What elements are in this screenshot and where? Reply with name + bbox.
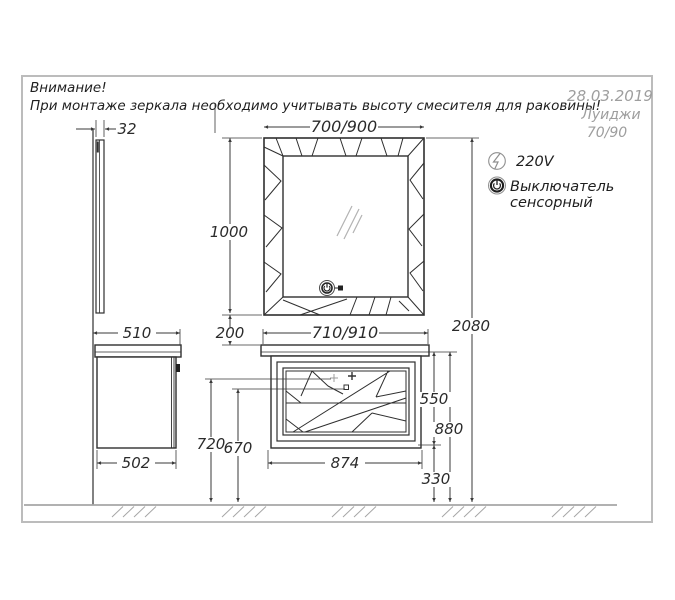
stamp-date: 28.03.2019 xyxy=(567,87,653,105)
power-supply-icon xyxy=(489,153,506,170)
dim-floor-clearance: 330 xyxy=(422,470,451,488)
dim-handle-height-right: 670 xyxy=(224,439,253,457)
dim-cabinet-body-width: 874 xyxy=(331,454,360,472)
switch-label-1: Выключатель xyxy=(510,179,614,195)
title-stamp: 28.03.2019 Луиджи 70/90 xyxy=(567,87,653,141)
lightning-icon xyxy=(494,154,501,170)
switch-marker xyxy=(338,286,343,291)
warning-note: Внимание! При монтаже зеркала необходимо… xyxy=(30,80,601,114)
front-countertop xyxy=(261,345,429,356)
switch-label-2: сенсорный xyxy=(510,195,593,211)
touch-switch-icon xyxy=(489,177,506,194)
mirror-side-view xyxy=(96,140,104,313)
mirror-mount-tick xyxy=(97,142,99,153)
dim-handle-height-left: 720 xyxy=(197,435,226,453)
cabinet-front-view xyxy=(261,345,429,448)
warning-title: Внимание! xyxy=(30,80,107,96)
drawing-svg: Внимание! При монтаже зеркала необходимо… xyxy=(0,0,675,600)
mirror-front-view xyxy=(264,138,424,315)
power-label: 220V xyxy=(516,154,555,170)
legend: 220V Выключатель сенсорный xyxy=(489,153,615,211)
stamp-model: Луиджи xyxy=(580,107,640,123)
dim-mirror-width: 700/900 xyxy=(311,117,377,136)
dim-front-panel-height: 550 xyxy=(420,390,449,408)
warning-text: При монтаже зеркала необходимо учитывать… xyxy=(30,98,601,114)
dim-cabinet-depth: 502 xyxy=(122,454,151,472)
dim-overall-height: 2080 xyxy=(452,317,490,335)
technical-drawing-page: Внимание! При монтаже зеркала необходимо… xyxy=(0,0,675,600)
dim-countertop-width: 710/910 xyxy=(312,323,378,342)
side-body xyxy=(97,357,176,448)
dim-countertop-depth: 510 xyxy=(123,324,152,342)
dim-mirror-depth: 32 xyxy=(117,120,136,138)
side-countertop xyxy=(95,345,181,357)
dim-mirror-height: 1000 xyxy=(210,223,248,241)
dim-cabinet-height: 880 xyxy=(435,420,464,438)
dim-gap: 200 xyxy=(216,324,245,342)
side-handle xyxy=(176,364,180,372)
floor-hatching xyxy=(112,507,596,518)
mirror-glass xyxy=(283,156,408,297)
stamp-size: 70/90 xyxy=(587,125,627,141)
front-body xyxy=(271,356,421,448)
cabinet-side-view xyxy=(95,345,181,448)
